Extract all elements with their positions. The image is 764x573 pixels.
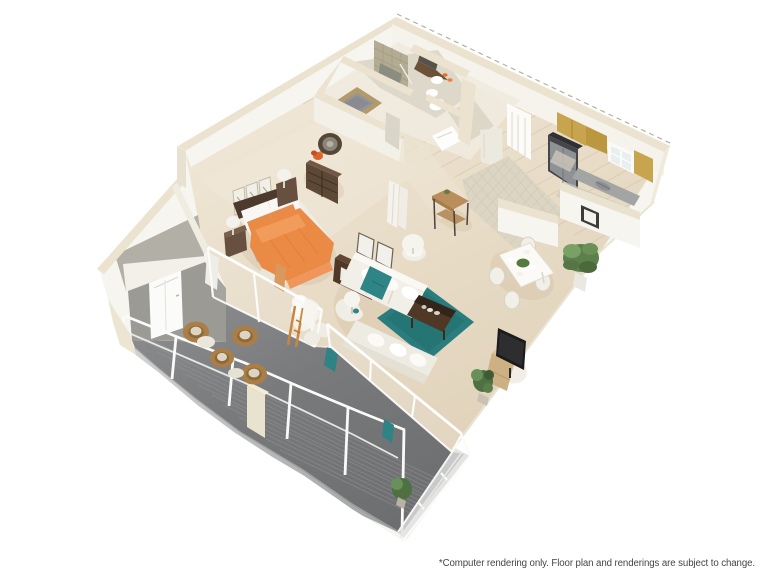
svg-text:*Computer rendering only. Floo: *Computer rendering only. Floor plan and… <box>439 558 755 569</box>
